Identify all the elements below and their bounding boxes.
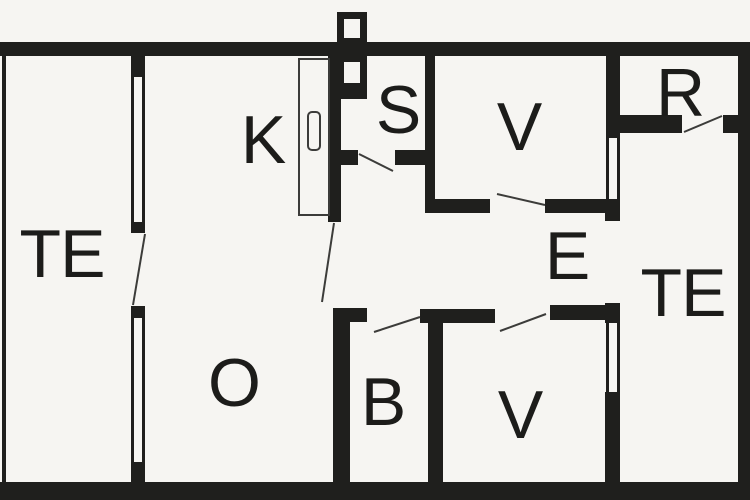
room-label-terrace-left: TE — [20, 220, 105, 288]
room-label-storage: S — [376, 76, 420, 144]
floor-plan: TE K S V R E TE O B V — [0, 0, 750, 500]
door-swing-bedroom-bottom — [500, 314, 546, 331]
door-swing-storage — [359, 154, 393, 171]
room-label-bathroom: B — [361, 368, 405, 436]
door-swing-bedroom-top — [497, 194, 545, 205]
room-label-living-room: O — [208, 349, 260, 417]
room-label-bedroom-bottom: V — [498, 381, 542, 449]
door-swing-bathroom — [374, 317, 420, 332]
room-label-kitchen: K — [241, 106, 285, 174]
door-swing-terrace-left — [133, 234, 145, 305]
room-label-bedroom-top: V — [497, 93, 541, 161]
room-label-entry: E — [545, 222, 589, 290]
door-swing-kitchen — [322, 223, 334, 302]
room-label-r-room: R — [656, 59, 704, 127]
room-label-terrace-right: TE — [641, 259, 726, 327]
